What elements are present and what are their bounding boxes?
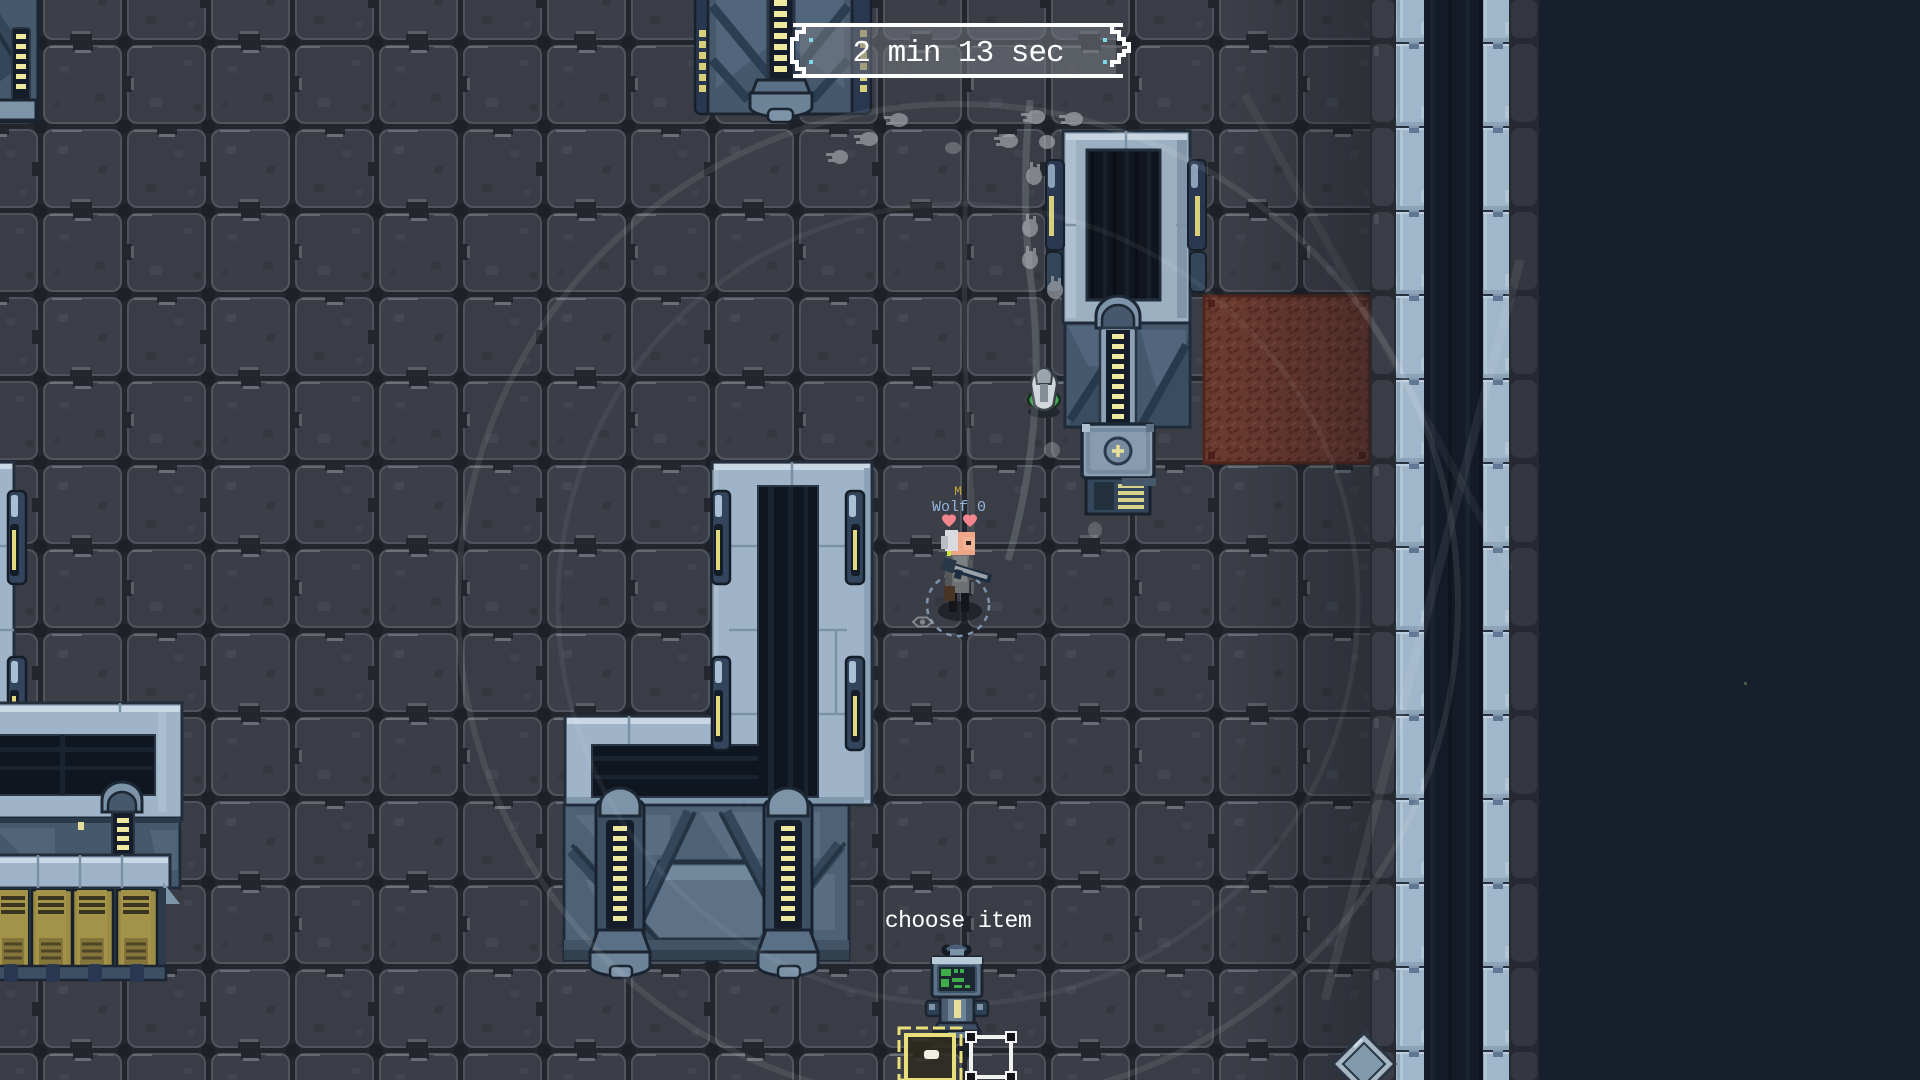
svg-text:choose item: choose item: [885, 908, 1031, 934]
svg-text:2 min 13 sec: 2 min 13 sec: [852, 36, 1063, 71]
svg-text:Wolf 0: Wolf 0: [932, 499, 986, 516]
svg-text:M: M: [954, 484, 962, 499]
